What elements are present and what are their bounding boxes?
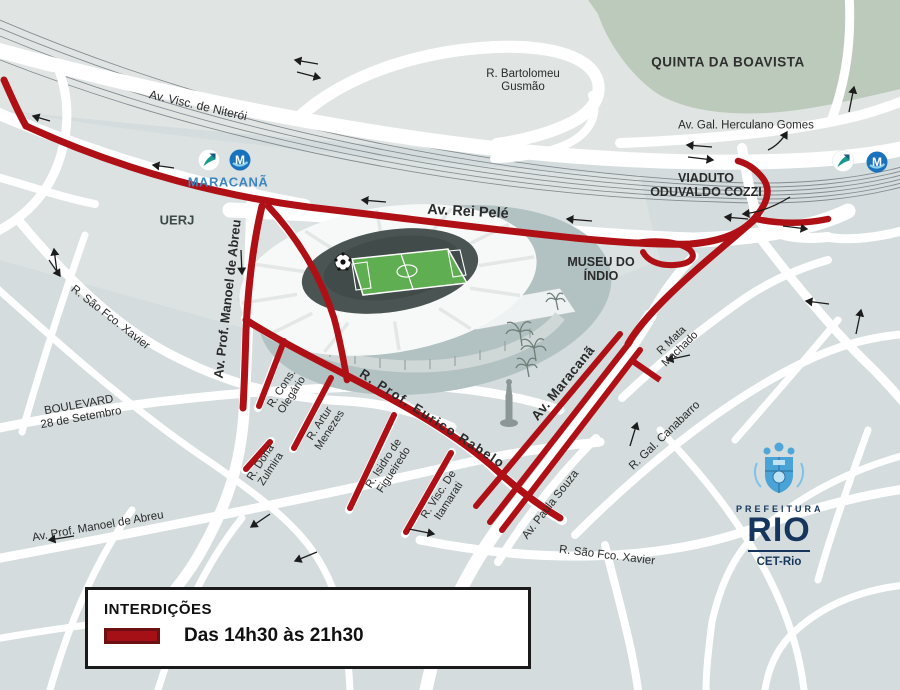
metro-icon: M [230,150,251,171]
metro-letter: M [872,155,882,169]
metro-icon: M [867,152,888,173]
train-icon [833,151,854,172]
legend-box: INTERDIÇÕES Das 14h30 às 21h30 [85,587,531,669]
logo-rio-text: RIO [736,514,822,546]
closure-color-swatch [104,628,160,644]
metro-letter: M [235,153,245,167]
train-icon [199,150,220,171]
city-crest-icon [747,441,811,497]
prefeitura-rio-logo: PREFEITURA RIO CET-Rio [736,441,822,568]
road-closure-map: M M Av. Visc. de Niterói MARACANÃ UERJ R… [0,0,900,690]
logo-agency-text: CET-Rio [736,556,822,568]
logo-divider [748,550,810,552]
legend-title: INTERDIÇÕES [104,601,528,618]
legend-entry: Das 14h30 às 21h30 [184,625,364,647]
